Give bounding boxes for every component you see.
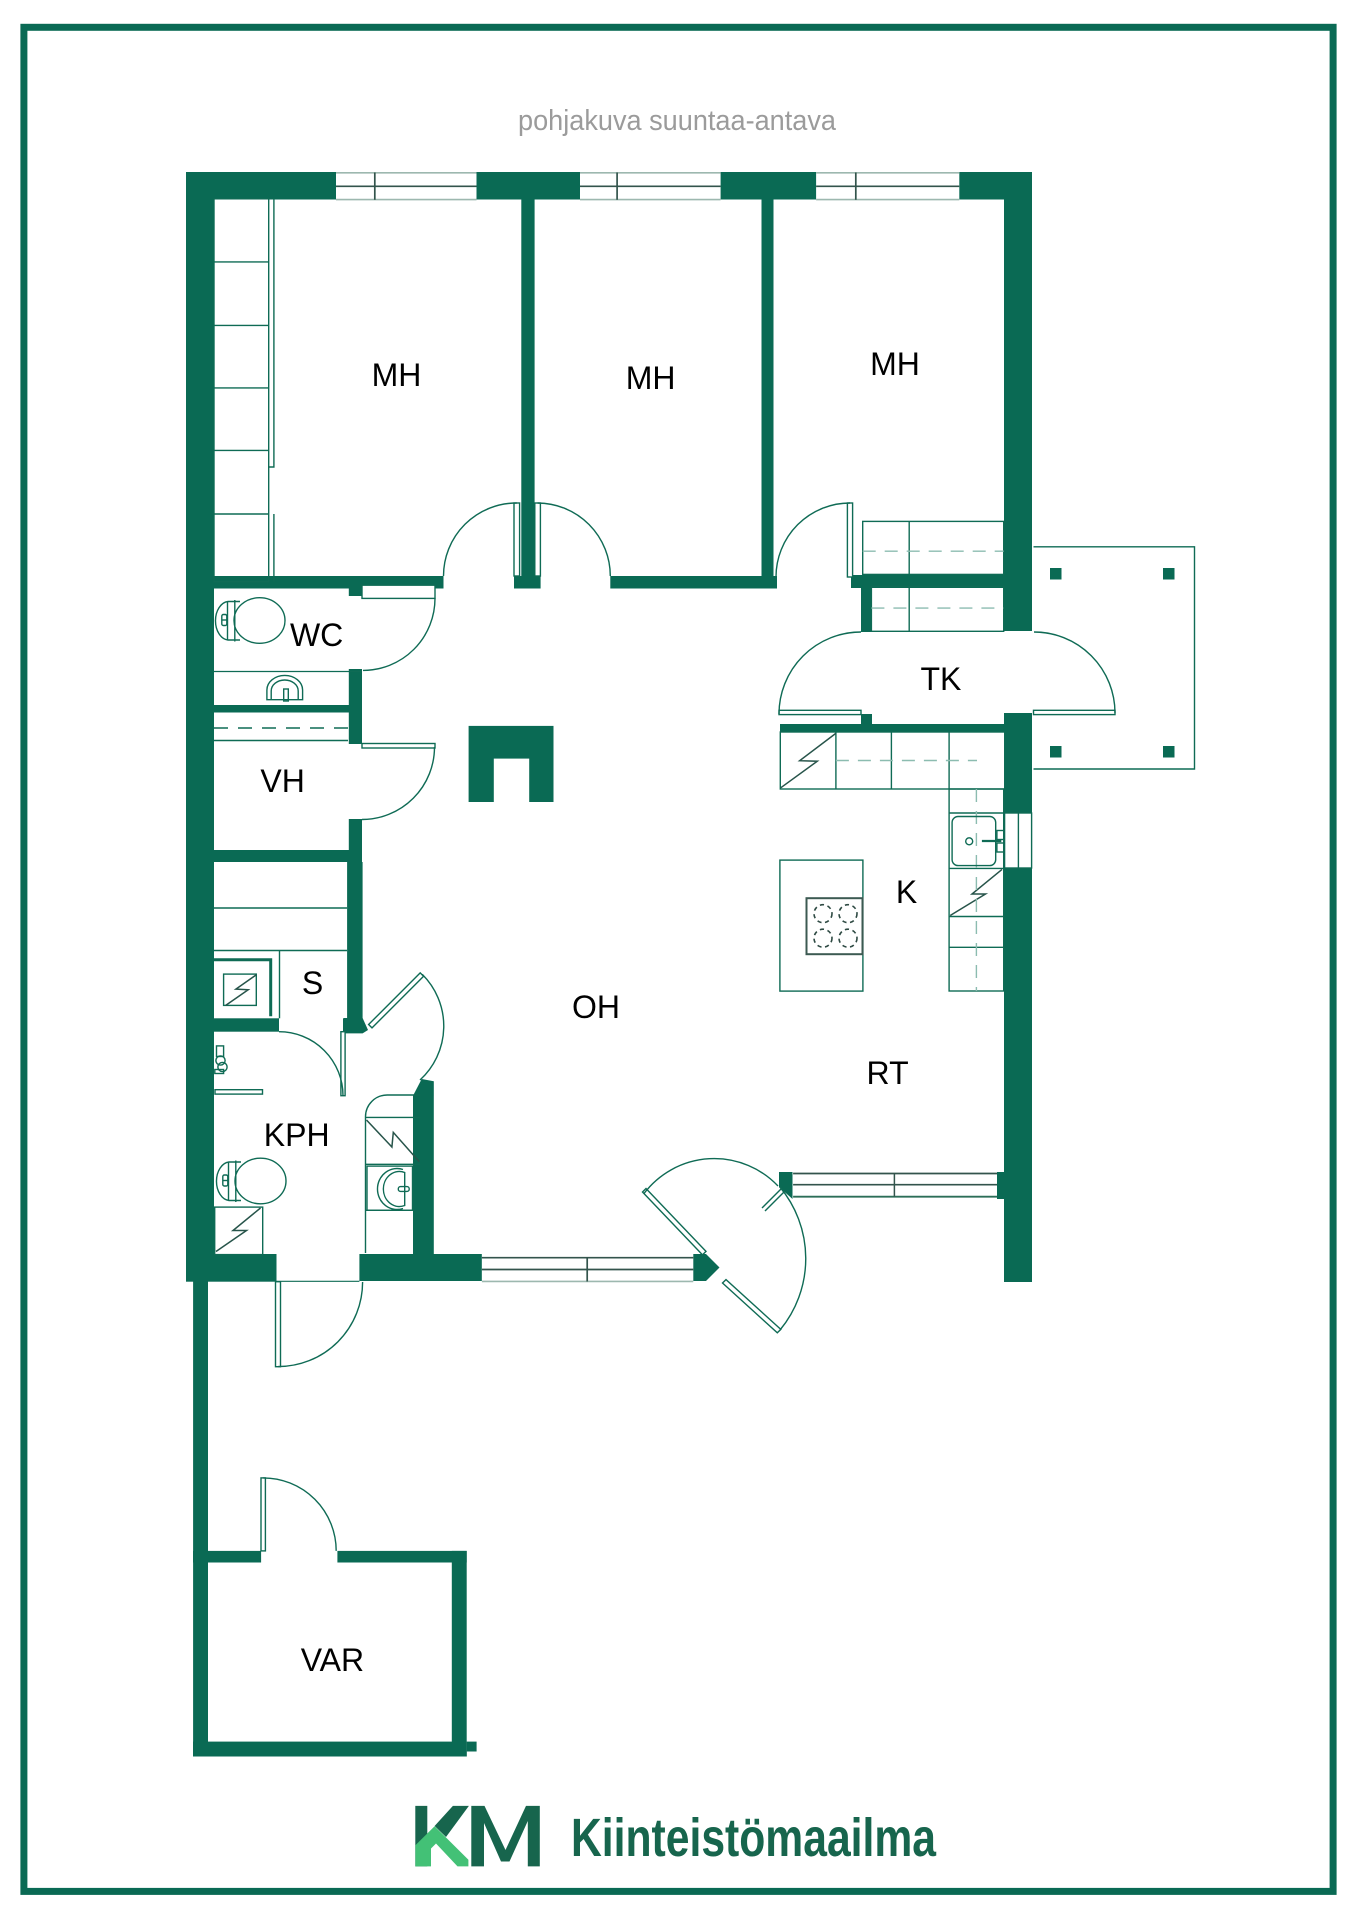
svg-text:RT: RT — [867, 1055, 909, 1091]
svg-text:K: K — [896, 874, 917, 910]
svg-text:WC: WC — [290, 617, 343, 653]
svg-text:MH: MH — [626, 360, 676, 396]
svg-text:pohjakuva suuntaa-antava: pohjakuva suuntaa-antava — [518, 105, 837, 137]
svg-text:KPH: KPH — [264, 1117, 330, 1153]
svg-text:MH: MH — [870, 346, 920, 382]
svg-text:S: S — [302, 965, 323, 1001]
svg-text:TK: TK — [920, 661, 961, 697]
svg-text:Kiinteistömaailma: Kiinteistömaailma — [571, 1808, 937, 1868]
svg-text:MH: MH — [372, 357, 422, 393]
svg-text:VAR: VAR — [301, 1642, 364, 1678]
svg-text:OH: OH — [572, 989, 620, 1025]
svg-text:VH: VH — [260, 763, 304, 799]
